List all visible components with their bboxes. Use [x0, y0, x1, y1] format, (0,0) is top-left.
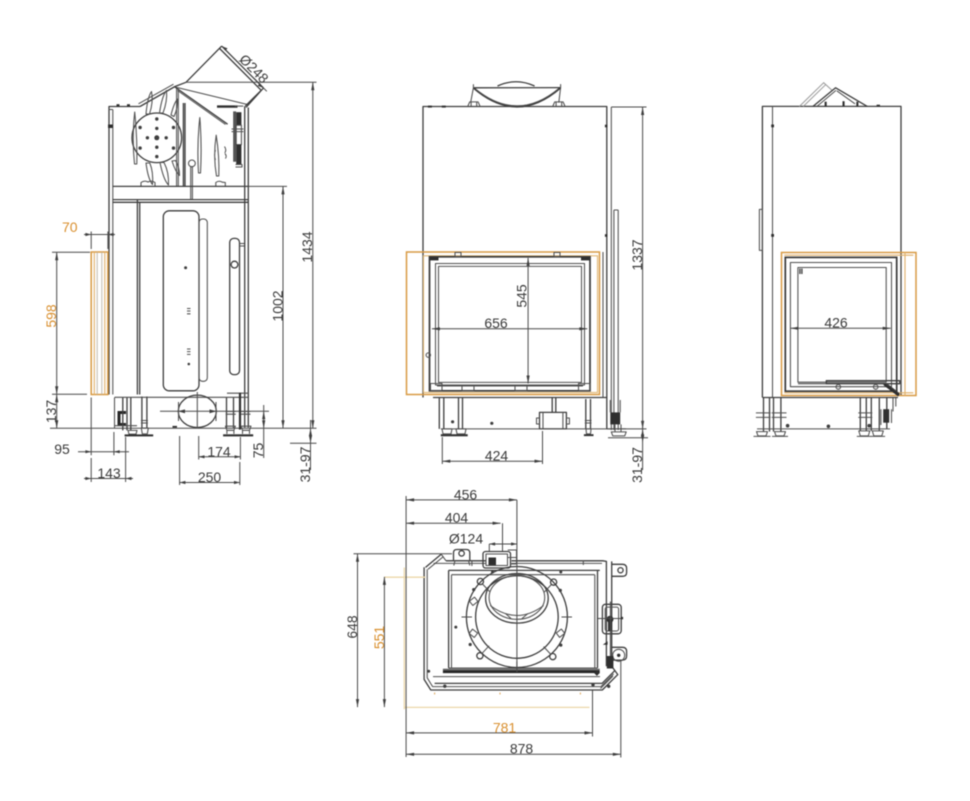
svg-text:426: 426 [824, 315, 848, 331]
svg-text:174: 174 [207, 443, 231, 459]
svg-text:648: 648 [344, 615, 360, 639]
svg-text:1002: 1002 [269, 290, 285, 321]
svg-text:143: 143 [97, 465, 121, 481]
svg-text:31-97: 31-97 [297, 446, 313, 482]
svg-text:Ø124: Ø124 [449, 531, 483, 547]
svg-text:95: 95 [54, 441, 70, 457]
svg-text:31-97: 31-97 [629, 447, 645, 483]
svg-text:781: 781 [493, 719, 517, 735]
svg-text:1337: 1337 [629, 239, 645, 270]
svg-text:551: 551 [371, 626, 387, 650]
svg-text:878: 878 [510, 741, 534, 757]
svg-text:75: 75 [250, 443, 266, 459]
svg-text:70: 70 [62, 219, 78, 235]
svg-text:545: 545 [514, 284, 530, 308]
svg-text:456: 456 [454, 486, 478, 502]
svg-text:656: 656 [484, 315, 508, 331]
svg-text:424: 424 [485, 448, 509, 464]
svg-text:598: 598 [43, 304, 59, 328]
svg-text:137: 137 [43, 400, 59, 424]
svg-text:404: 404 [445, 510, 469, 526]
svg-text:1434: 1434 [299, 231, 315, 262]
svg-text:250: 250 [198, 469, 222, 485]
